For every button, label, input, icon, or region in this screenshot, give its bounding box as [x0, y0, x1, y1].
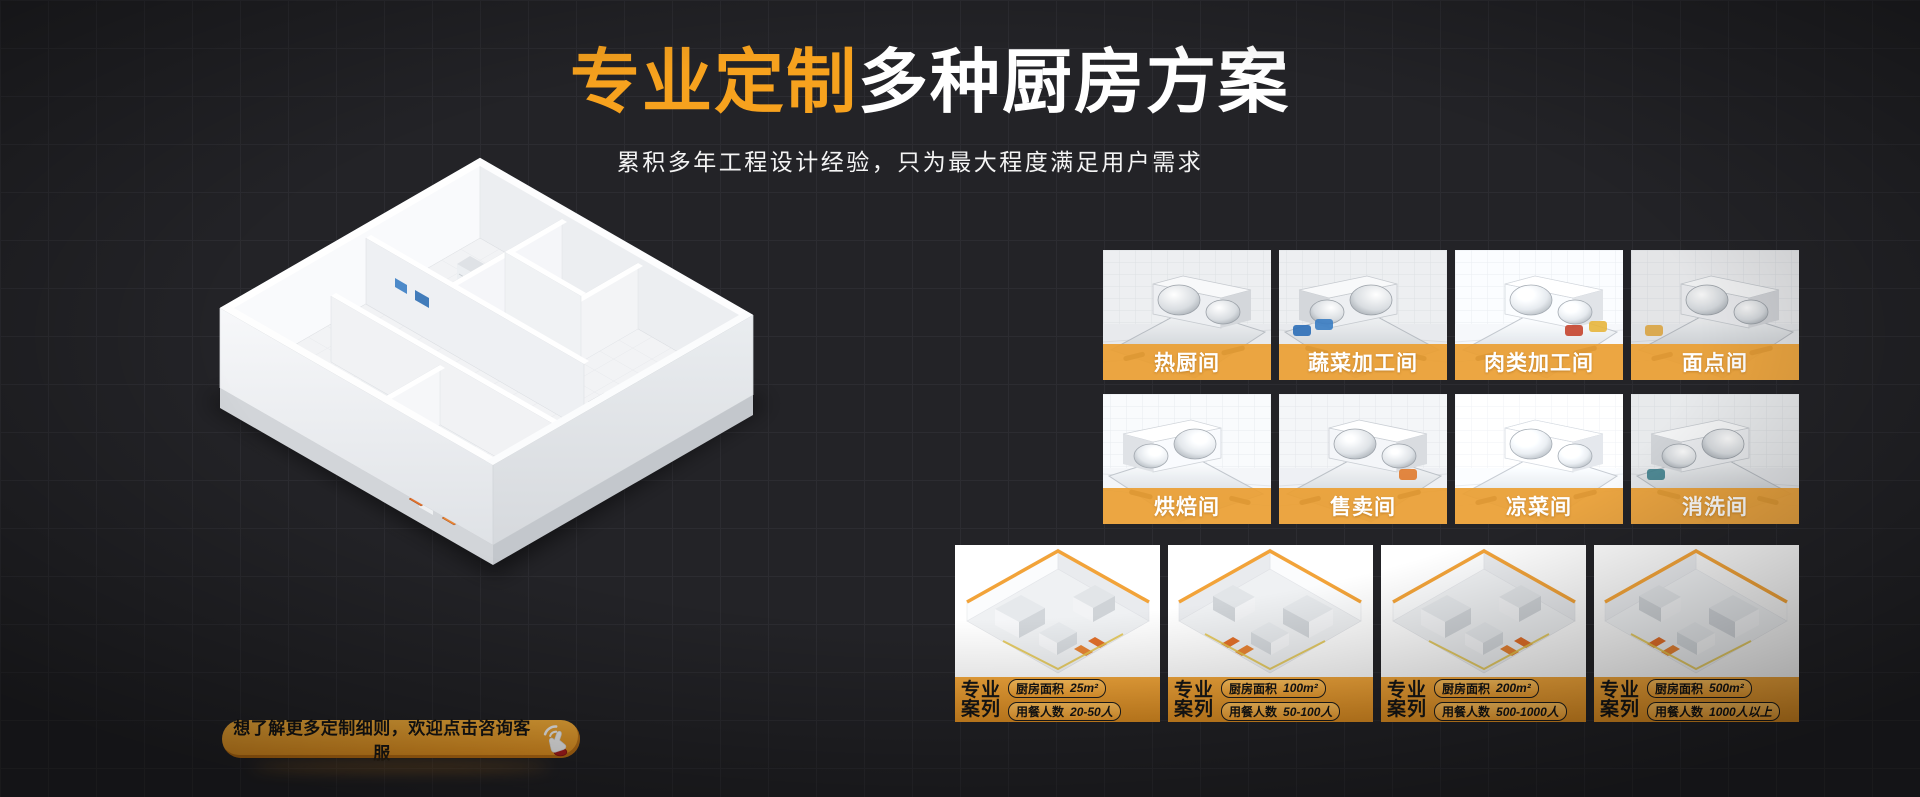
click-hand-icon: [540, 724, 574, 758]
room-card-hot-kitchen[interactable]: 热厨间: [1103, 250, 1271, 380]
kitchen-area-stat: 厨房面积100m²: [1221, 679, 1326, 698]
room-label: 热厨间: [1103, 344, 1271, 380]
case-gallery: 专业案列 厨房面积25m² 用餐人数20-50人 专业案列 厨房面积100m² …: [955, 545, 1799, 722]
room-label: 凉菜间: [1455, 488, 1623, 524]
room-label: 肉类加工间: [1455, 344, 1623, 380]
case-stats: 厨房面积25m² 用餐人数20-50人: [1008, 679, 1121, 721]
case-card-500m2[interactable]: 专业案列 厨房面积500m² 用餐人数1000人以上: [1594, 545, 1799, 722]
diners-stat: 用餐人数20-50人: [1008, 702, 1121, 721]
case-photo: [955, 545, 1160, 677]
room-card-meat-processing[interactable]: 肉类加工间: [1455, 250, 1623, 380]
kitchen-area-stat: 厨房面积25m²: [1008, 679, 1106, 698]
case-badge: 专业案列: [1174, 681, 1214, 719]
room-card-dishwashing[interactable]: 消洗间: [1631, 394, 1799, 524]
title-highlight: 专业定制: [570, 43, 858, 121]
room-label: 烘焙间: [1103, 488, 1271, 524]
room-card-sales[interactable]: 售卖间: [1279, 394, 1447, 524]
case-card-25m2[interactable]: 专业案列 厨房面积25m² 用餐人数20-50人: [955, 545, 1160, 722]
case-badge: 专业案列: [961, 681, 1001, 719]
case-footer: 专业案列 厨房面积100m² 用餐人数50-100人: [1168, 677, 1373, 722]
room-label: 面点间: [1631, 344, 1799, 380]
case-card-200m2[interactable]: 专业案列 厨房面积200m² 用餐人数500-1000人: [1381, 545, 1586, 722]
page-title: 专业定制多种厨房方案: [0, 44, 1860, 121]
room-label: 售卖间: [1279, 488, 1447, 524]
case-footer: 专业案列 厨房面积200m² 用餐人数500-1000人: [1381, 677, 1586, 722]
case-badge: 专业案列: [1387, 681, 1427, 719]
case-stats: 厨房面积500m² 用餐人数1000人以上: [1647, 679, 1780, 721]
room-label: 消洗间: [1631, 488, 1799, 524]
room-gallery: 热厨间 蔬菜加工间 肉类加工间 面点间 烘焙间 售卖间 凉菜间 消洗间: [1103, 250, 1799, 524]
case-photo: [1168, 545, 1373, 677]
room-label: 蔬菜加工间: [1279, 344, 1447, 380]
case-footer: 专业案列 厨房面积25m² 用餐人数20-50人: [955, 677, 1160, 722]
case-stats: 厨房面积100m² 用餐人数50-100人: [1221, 679, 1340, 721]
case-photo: [1594, 545, 1799, 677]
case-photo: [1381, 545, 1586, 677]
kitchen-area-stat: 厨房面积200m²: [1434, 679, 1539, 698]
case-footer: 专业案列 厨房面积500m² 用餐人数1000人以上: [1594, 677, 1799, 722]
room-card-vegetable-processing[interactable]: 蔬菜加工间: [1279, 250, 1447, 380]
diners-stat: 用餐人数1000人以上: [1647, 702, 1780, 721]
kitchen-floorplan-illustration: [95, 150, 785, 680]
room-card-baking[interactable]: 烘焙间: [1103, 394, 1271, 524]
cta-label: 想了解更多定制细则，欢迎点击咨询客服: [228, 714, 536, 764]
floorplan-svg: [95, 150, 785, 680]
room-card-pastry[interactable]: 面点间: [1631, 250, 1799, 380]
case-stats: 厨房面积200m² 用餐人数500-1000人: [1434, 679, 1567, 721]
case-card-100m2[interactable]: 专业案列 厨房面积100m² 用餐人数50-100人: [1168, 545, 1373, 722]
kitchen-area-stat: 厨房面积500m²: [1647, 679, 1752, 698]
title-rest: 多种厨房方案: [858, 43, 1290, 121]
diners-stat: 用餐人数50-100人: [1221, 702, 1340, 721]
case-badge: 专业案列: [1600, 681, 1640, 719]
room-card-cold-dishes[interactable]: 凉菜间: [1455, 394, 1623, 524]
contact-cta-button[interactable]: 想了解更多定制细则，欢迎点击咨询客服: [222, 720, 580, 758]
diners-stat: 用餐人数500-1000人: [1434, 702, 1567, 721]
